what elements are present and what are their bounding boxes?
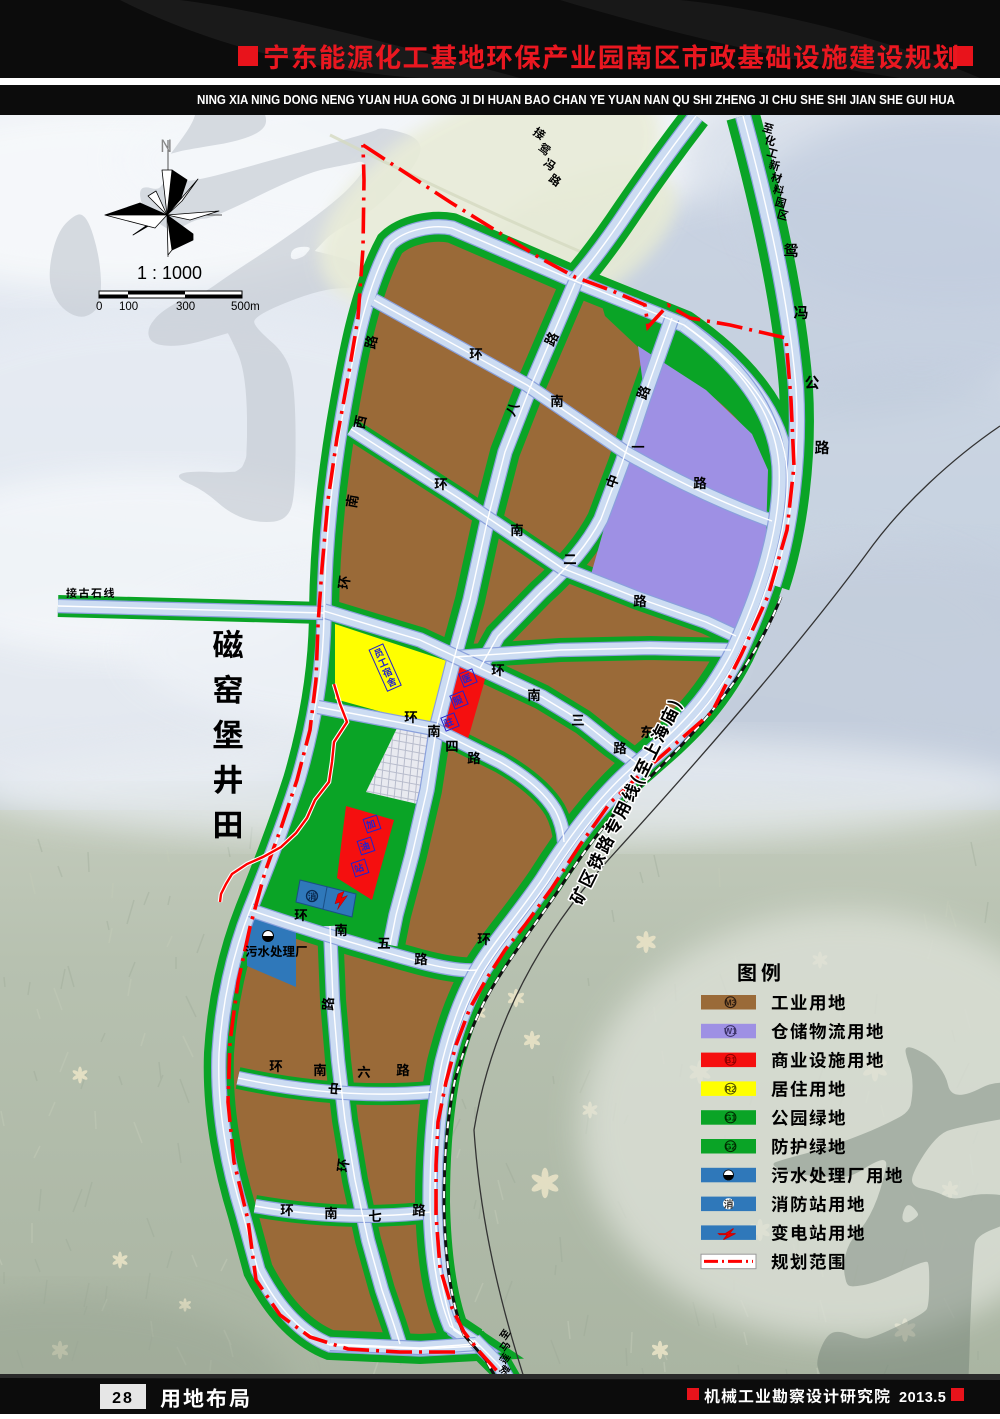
svg-text:100: 100 [119,301,138,313]
svg-text:M3: M3 [725,997,737,1007]
svg-text:B1: B1 [725,1055,736,1065]
svg-text:0: 0 [96,301,102,313]
svg-text:R2: R2 [725,1084,736,1094]
svg-text:500m: 500m [231,301,260,313]
svg-text:NING XIA NING DONG NENG YUAN H: NING XIA NING DONG NENG YUAN HUA GONG JI… [197,93,955,107]
svg-text:G2: G2 [725,1141,737,1151]
svg-text:2013.5: 2013.5 [899,1390,946,1406]
svg-text:1 : 1000: 1 : 1000 [137,263,202,283]
svg-text:W1: W1 [724,1026,737,1036]
svg-text:28: 28 [112,1390,134,1407]
svg-text:G1: G1 [725,1113,737,1123]
svg-text:300: 300 [176,301,195,313]
